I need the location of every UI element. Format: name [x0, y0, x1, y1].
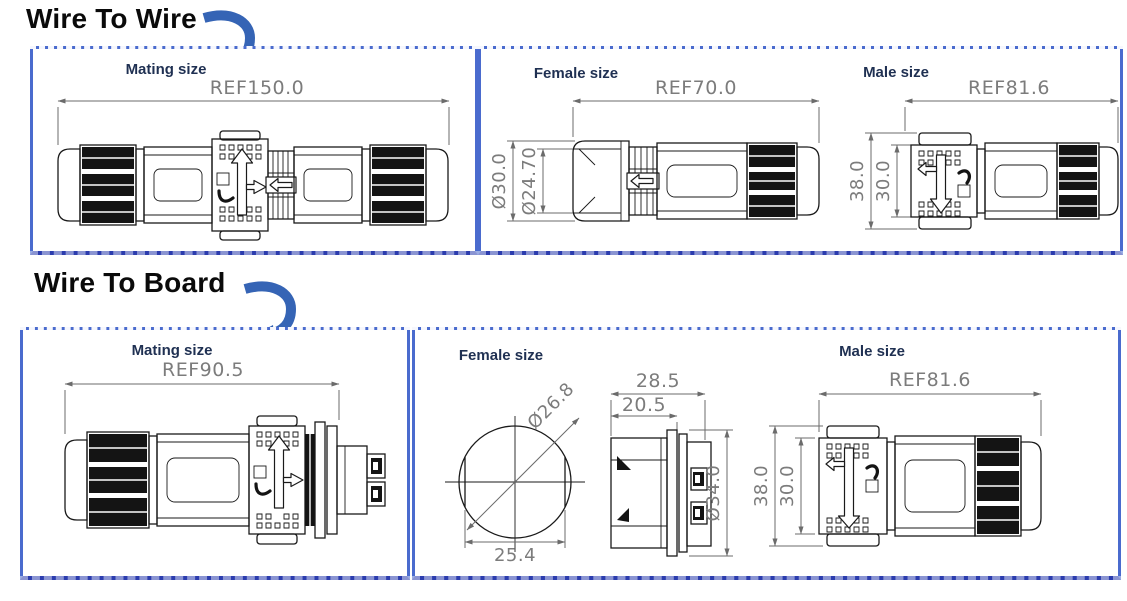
w2w-mating-drawing: REF150.0 [33, 49, 475, 251]
dim-text-dia2470: Ø24.70 [519, 147, 540, 216]
female-connector [573, 141, 819, 221]
w2b-mating-panel: Mating size REF90.5 [20, 327, 410, 580]
dim-ref-overall: REF90.5 [65, 359, 339, 434]
dim-text-dia34: Ø34.0 [703, 465, 724, 522]
male-connector [911, 133, 1118, 229]
w2w-female-male-panel: Female size Male size REF70.0 Ø30.0 Ø24.… [478, 46, 1123, 255]
male-connector [819, 426, 1041, 546]
dim-text-dia30: Ø30.0 [489, 153, 510, 210]
dim-text-38: 38.0 [847, 160, 868, 202]
dim-text-254: 25.4 [494, 545, 536, 566]
w2b-mating-drawing: REF90.5 [23, 330, 407, 577]
w2b-female-male-drawing: Ø26.8 25.4 28.5 20.5 [415, 330, 1118, 577]
dim-text-205: 20.5 [622, 394, 666, 416]
dim-text-30: 30.0 [873, 160, 894, 202]
dim-text-30: 30.0 [777, 465, 798, 507]
dim-text-ref816: REF81.6 [968, 77, 1050, 99]
dim-text-38: 38.0 [751, 465, 772, 507]
dim-text-ref905: REF90.5 [162, 359, 244, 381]
dim-text-ref150: REF150.0 [210, 77, 305, 99]
w2b-female-male-panel: Female size Male size Ø26.8 25.4 [412, 327, 1121, 580]
dim-text-285: 28.5 [636, 370, 680, 392]
female-front-view: Ø26.8 25.4 [445, 379, 585, 566]
wire-to-wire-title: Wire To Wire [26, 3, 197, 35]
dim-ref-overall: REF150.0 [58, 77, 449, 145]
dim-text-ref70: REF70.0 [655, 77, 737, 99]
page-canvas: Wire To Wire Mating size REF150.0 [0, 0, 1127, 601]
w2w-mating-panel: Mating size REF150.0 [30, 46, 478, 255]
wire-to-board-title: Wire To Board [34, 267, 226, 299]
connector-assembly [58, 131, 448, 240]
dim-text-ref816: REF81.6 [889, 369, 971, 391]
dim-text-dia268: Ø26.8 [524, 379, 579, 434]
w2w-female-male-drawing: REF70.0 Ø30.0 Ø24.70 [481, 49, 1120, 251]
female-side-view: 28.5 20.5 [611, 370, 733, 556]
connector-assembly [65, 416, 385, 544]
